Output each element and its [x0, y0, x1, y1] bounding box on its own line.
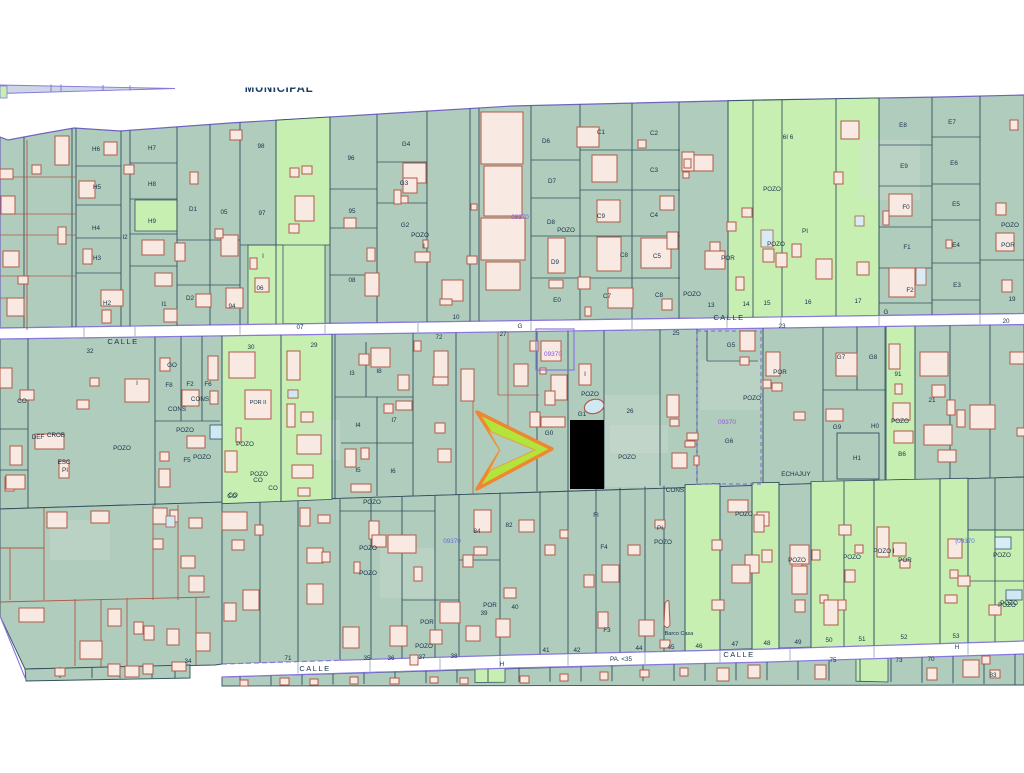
svg-text:POZO: POZO: [581, 391, 599, 398]
svg-text:82: 82: [505, 522, 513, 529]
svg-text:I3: I3: [349, 370, 355, 377]
svg-text:F2: F2: [186, 381, 194, 388]
svg-text:D1: D1: [189, 206, 198, 213]
svg-text:20: 20: [1002, 318, 1010, 325]
svg-text:B6: B6: [898, 451, 906, 458]
svg-text:09370: 09370: [443, 538, 461, 545]
svg-text:I4: I4: [355, 422, 361, 429]
svg-text:ESC: ESC: [58, 459, 71, 466]
svg-text:6I 6: 6I 6: [783, 134, 794, 141]
svg-text:F5: F5: [183, 457, 191, 464]
svg-text:POZO: POZO: [763, 186, 781, 193]
svg-text:E4: E4: [952, 242, 960, 249]
svg-text:E8: E8: [899, 122, 907, 129]
svg-text:CALLE: CALLE: [713, 313, 744, 322]
svg-text:G9: G9: [833, 424, 842, 431]
svg-text:25: 25: [672, 330, 680, 337]
svg-text:98: 98: [257, 143, 265, 150]
svg-text:F1: F1: [903, 244, 911, 251]
svg-text:PI: PI: [62, 467, 68, 474]
svg-text:44: 44: [635, 645, 643, 652]
svg-text:96: 96: [347, 155, 355, 162]
svg-text:POZO: POZO: [236, 441, 254, 448]
svg-text:POZO: POZO: [359, 570, 377, 577]
svg-text:D9: D9: [551, 259, 560, 266]
svg-text:30: 30: [247, 344, 255, 351]
svg-text:CALLE: CALLE: [107, 337, 138, 346]
svg-text:DEF: DEF: [32, 434, 45, 441]
svg-text:H1: H1: [853, 455, 862, 462]
svg-text:C4: C4: [650, 212, 659, 219]
svg-text:GO: GO: [167, 362, 177, 369]
svg-text:POZO: POZO: [1001, 222, 1019, 229]
svg-text:POZO: POZO: [557, 227, 575, 234]
svg-text:H6: H6: [92, 146, 101, 153]
svg-text:C3: C3: [650, 167, 659, 174]
svg-text:H9: H9: [148, 218, 157, 225]
svg-text:I5: I5: [355, 467, 361, 474]
svg-text:G4: G4: [402, 141, 411, 148]
svg-text:H3: H3: [93, 255, 102, 262]
svg-text:09370: 09370: [511, 214, 529, 221]
svg-text:51: 51: [858, 636, 866, 643]
svg-text:G2: G2: [401, 222, 410, 229]
svg-text:CALLE: CALLE: [723, 650, 754, 659]
svg-text:CO: CO: [268, 485, 278, 492]
svg-text:52: 52: [900, 634, 908, 641]
svg-text:F8: F8: [165, 382, 173, 389]
svg-text:19: 19: [1008, 296, 1016, 303]
svg-text:POZO: POZO: [788, 557, 806, 564]
svg-text:POZO: POZO: [767, 241, 785, 248]
svg-text:I1: I1: [161, 301, 167, 308]
svg-text:91: 91: [894, 371, 902, 378]
svg-text:POZO: POZO: [363, 499, 381, 506]
svg-text:I2: I2: [122, 234, 128, 241]
svg-text:H0: H0: [871, 423, 880, 430]
svg-text:POZO: POZO: [113, 445, 131, 452]
svg-text:73: 73: [895, 657, 903, 664]
svg-text:POR: POR: [773, 369, 787, 376]
svg-text:I: I: [262, 253, 264, 260]
svg-text:I: I: [136, 380, 138, 387]
svg-text:E0: E0: [553, 297, 561, 304]
svg-text:ECHAJUY: ECHAJUY: [781, 471, 811, 478]
svg-text:PA. <35: PA. <35: [610, 656, 633, 663]
svg-text:POR II: POR II: [250, 400, 267, 406]
svg-text:CONS: CONS: [168, 406, 186, 413]
svg-text:POZO: POZO: [654, 539, 672, 546]
svg-text:46: 46: [695, 643, 703, 650]
svg-text:08: 08: [348, 277, 356, 284]
svg-text:H: H: [500, 661, 505, 668]
svg-text:34: 34: [184, 658, 192, 665]
svg-text:83: 83: [989, 672, 997, 679]
svg-text:16: 16: [804, 299, 812, 306]
svg-text:(09370: (09370: [955, 538, 975, 545]
svg-text:CO: CO: [227, 493, 237, 500]
svg-text:17: 17: [854, 298, 862, 305]
svg-text:10: 10: [452, 314, 460, 321]
svg-text:POR: POR: [1001, 242, 1015, 249]
svg-text:POZO: POZO: [998, 602, 1016, 609]
svg-text:POZO: POZO: [193, 454, 211, 461]
svg-text:POZO: POZO: [735, 511, 753, 518]
svg-text:D2: D2: [186, 295, 195, 302]
svg-text:72: 72: [435, 334, 443, 341]
svg-text:40: 40: [511, 604, 519, 611]
svg-text:38: 38: [450, 653, 458, 660]
svg-text:POZO: POZO: [743, 395, 761, 402]
svg-text:45: 45: [667, 644, 675, 651]
svg-text:E7: E7: [948, 119, 956, 126]
svg-text:POR: POR: [721, 255, 735, 262]
svg-text:15: 15: [763, 300, 771, 307]
svg-text:75: 75: [829, 657, 837, 664]
svg-text:71: 71: [284, 655, 292, 662]
svg-text:C7: C7: [603, 293, 612, 300]
svg-text:H2: H2: [103, 300, 112, 307]
svg-text:G3: G3: [400, 180, 409, 187]
svg-text:I: I: [423, 243, 425, 250]
svg-text:C9: C9: [597, 213, 606, 220]
svg-text:POR: POR: [483, 602, 497, 609]
svg-text:D7: D7: [548, 178, 557, 185]
svg-text:G: G: [884, 309, 889, 316]
svg-text:53: 53: [952, 633, 960, 640]
svg-text:97: 97: [258, 210, 266, 217]
svg-text:07: 07: [296, 324, 304, 331]
svg-text:H4: H4: [92, 225, 101, 232]
svg-text:94: 94: [228, 303, 236, 310]
svg-text:42: 42: [573, 647, 581, 654]
svg-text:CO: CO: [253, 477, 263, 484]
svg-text:36: 36: [387, 655, 395, 662]
svg-text:I: I: [584, 371, 586, 378]
svg-text:POZO: POZO: [176, 427, 194, 434]
svg-text:CALLE: CALLE: [299, 664, 330, 673]
svg-text:PI: PI: [802, 228, 808, 235]
svg-text:CONS: CONS: [191, 396, 209, 403]
svg-text:39: 39: [480, 610, 488, 617]
svg-text:POZO: POZO: [843, 554, 861, 561]
svg-text:21: 21: [928, 397, 936, 404]
svg-text:G6: G6: [725, 438, 734, 445]
svg-text:CROB: CROB: [47, 432, 65, 439]
svg-text:E3: E3: [953, 282, 961, 289]
svg-text:G5: G5: [727, 342, 736, 349]
svg-text:C1: C1: [597, 129, 606, 136]
svg-text:E9: E9: [900, 163, 908, 170]
svg-text:14: 14: [742, 301, 750, 308]
svg-text:E6: E6: [950, 160, 958, 167]
svg-text:POR: POR: [898, 557, 912, 564]
svg-text:POZO: POZO: [993, 552, 1011, 559]
svg-text:50: 50: [825, 637, 833, 644]
svg-text:29: 29: [310, 342, 318, 349]
svg-text:POZO I: POZO I: [873, 548, 895, 555]
svg-text:G8: G8: [869, 354, 878, 361]
svg-text:23: 23: [778, 323, 786, 330]
svg-text:I7: I7: [391, 417, 397, 424]
svg-text:POZO: POZO: [683, 291, 701, 298]
svg-text:I8: I8: [376, 368, 382, 375]
svg-text:13: 13: [707, 302, 715, 309]
svg-text:E5: E5: [952, 201, 960, 208]
svg-text:C5: C5: [653, 253, 662, 260]
svg-text:Barco Casa: Barco Casa: [665, 631, 695, 637]
svg-text:F0: F0: [902, 204, 910, 211]
svg-text:H5: H5: [93, 184, 102, 191]
svg-text:CO: CO: [17, 398, 27, 405]
svg-text:05: 05: [220, 209, 228, 216]
svg-text:CONS: CONS: [666, 487, 684, 494]
svg-text:84: 84: [473, 528, 481, 535]
svg-text:C8: C8: [655, 292, 664, 299]
svg-text:G1: G1: [578, 411, 587, 418]
svg-text:48: 48: [763, 640, 771, 647]
svg-text:C8: C8: [620, 252, 629, 259]
svg-text:95: 95: [348, 208, 356, 215]
svg-text:70: 70: [927, 656, 935, 663]
svg-text:F2: F2: [906, 287, 914, 294]
svg-text:09370: 09370: [718, 419, 736, 426]
svg-text:35: 35: [363, 655, 371, 662]
svg-text:G: G: [518, 323, 523, 330]
svg-text:27: 27: [499, 331, 507, 338]
svg-text:H7: H7: [148, 145, 157, 152]
svg-text:26: 26: [626, 408, 634, 415]
svg-text:F6: F6: [204, 381, 212, 388]
svg-text:F3: F3: [603, 627, 611, 634]
svg-text:F4: F4: [600, 544, 608, 551]
svg-text:POZO: POZO: [618, 454, 636, 461]
svg-text:49: 49: [794, 639, 802, 646]
svg-text:POZO: POZO: [415, 643, 433, 650]
svg-text:D8: D8: [547, 219, 556, 226]
svg-text:D6: D6: [542, 138, 551, 145]
svg-text:POZO: POZO: [891, 418, 909, 425]
svg-text:H8: H8: [148, 181, 157, 188]
svg-text:C2: C2: [650, 130, 659, 137]
svg-text:32: 32: [86, 348, 94, 355]
svg-text:G0: G0: [545, 430, 554, 437]
svg-text:I6: I6: [390, 468, 396, 475]
svg-text:09370: 09370: [544, 351, 562, 358]
svg-text:06: 06: [256, 285, 264, 292]
svg-text:FI: FI: [593, 512, 599, 519]
svg-text:41: 41: [542, 647, 550, 654]
svg-text:H: H: [955, 644, 960, 651]
svg-text:37: 37: [418, 654, 426, 661]
svg-text:PI: PI: [657, 525, 663, 532]
svg-text:POZO: POZO: [411, 232, 429, 239]
svg-text:47: 47: [731, 641, 739, 648]
svg-text:G7: G7: [837, 354, 846, 361]
svg-text:POZO: POZO: [359, 545, 377, 552]
svg-text:POR: POR: [420, 619, 434, 626]
